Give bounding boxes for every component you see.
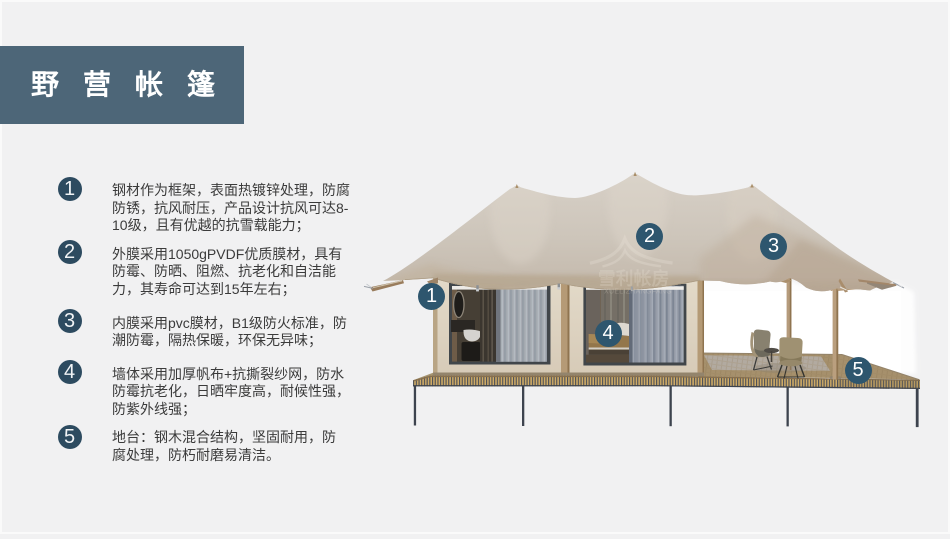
- svg-text:雪利帐房: 雪利帐房: [598, 269, 670, 289]
- svg-text:XUELIZHANGFANG: XUELIZHANGFANG: [604, 289, 672, 296]
